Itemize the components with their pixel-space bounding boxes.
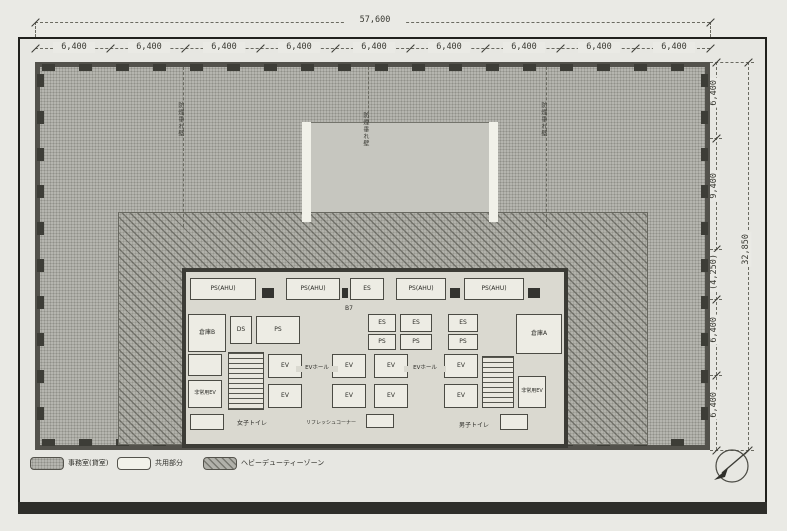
room-es: ES	[448, 314, 478, 332]
legend-label-office: 事務室(貸室)	[68, 460, 108, 467]
room-ev: EV	[332, 384, 366, 408]
void-area	[311, 122, 489, 223]
north-arrow-icon	[706, 444, 756, 490]
legend-swatch-heavy-duty	[203, 457, 237, 470]
ev-hall-label: EVホール	[404, 366, 446, 372]
legend-label-common: 共用部分	[155, 460, 183, 467]
light-strip-left	[302, 122, 311, 222]
legend-label-heavy-duty: ヘビーデューティーゾーン	[241, 460, 324, 467]
room-small	[190, 414, 224, 430]
core-note: B7	[340, 306, 358, 312]
room-ev: EV	[268, 384, 302, 408]
room-ps: PS	[400, 334, 432, 350]
bottom-band	[18, 502, 767, 514]
dim-segment-right: 6,400	[709, 315, 720, 345]
room-ev: EV	[444, 354, 478, 378]
dim-segment: 6,400	[203, 42, 245, 53]
door-block	[342, 288, 348, 298]
dim-segment: 6,400	[278, 42, 320, 53]
dim-segment-right: 9,400	[709, 171, 720, 201]
room-ds: DS	[230, 316, 252, 344]
door-block	[262, 288, 274, 298]
ev-hall-label: EVホール	[296, 366, 338, 372]
legend-swatch-common	[117, 457, 151, 470]
floor-plan-sheet: 57,600 6,400 6,400 6,400 6,400 6,400 6,4…	[0, 0, 787, 531]
dim-ext-left	[35, 22, 36, 37]
dim-segment-right: 6,400	[709, 390, 720, 420]
dim-segment: 6,400	[653, 42, 695, 53]
room-ps-ahu: PS(AHU)	[464, 278, 524, 300]
room-storage-b: 倉庫B	[188, 314, 226, 352]
toilet-women-label: 女子トイレ	[230, 421, 274, 427]
room-ps: PS	[448, 334, 478, 350]
room-fire-ev: 非常用EV	[518, 376, 546, 408]
dim-segment-right: 6,400	[709, 78, 720, 108]
smoke-wall-line	[546, 67, 547, 227]
room-ev: EV	[374, 384, 408, 408]
room-ps: PS	[256, 316, 300, 344]
room-ps: PS	[368, 334, 396, 350]
smoke-wall-label: 防煙垂れ壁	[176, 102, 183, 137]
room-ps-ahu: PS(AHU)	[286, 278, 340, 300]
smoke-wall-label: 防煙垂れ壁	[539, 102, 546, 137]
room-storage-a: 倉庫A	[516, 314, 562, 354]
legend-swatch-office	[30, 457, 64, 470]
room-ps-ahu: PS(AHU)	[190, 278, 256, 300]
door-block	[450, 288, 460, 298]
room-small	[500, 414, 528, 430]
light-strip-right	[489, 122, 498, 222]
dim-segment: 6,400	[428, 42, 470, 53]
room-es: ES	[368, 314, 396, 332]
room-side	[188, 354, 222, 376]
dim-total-height: 32,850	[741, 232, 752, 267]
room-ps-ahu: PS(AHU)	[396, 278, 446, 300]
dim-segment-right: (4,250)	[709, 252, 720, 292]
stair-left	[228, 352, 264, 410]
room-fire-ev: 非常用EV	[188, 380, 222, 408]
column-row-right	[701, 74, 708, 442]
dim-segment: 6,400	[578, 42, 620, 53]
dim-segment: 6,400	[128, 42, 170, 53]
smoke-wall-label: 防煙垂れ壁	[361, 112, 368, 147]
dim-segment: 6,400	[53, 42, 95, 53]
room-small	[366, 414, 394, 428]
column-row-top	[42, 64, 703, 71]
dim-ext-right	[710, 22, 711, 37]
door-block	[528, 288, 540, 298]
room-ev: EV	[444, 384, 478, 408]
smoke-wall-line	[183, 67, 184, 227]
column-row-left	[37, 74, 44, 442]
toilet-men-label: 男子トイレ	[452, 423, 496, 429]
room-ev: EV	[374, 354, 408, 378]
room-es: ES	[350, 278, 384, 300]
dim-segment: 6,400	[353, 42, 395, 53]
dim-segment: 6,400	[503, 42, 545, 53]
stair-right	[482, 356, 514, 408]
room-es: ES	[400, 314, 432, 332]
dim-total-width: 57,600	[345, 15, 405, 26]
refresh-corner-label: リフレッシュコーナー	[300, 421, 362, 426]
